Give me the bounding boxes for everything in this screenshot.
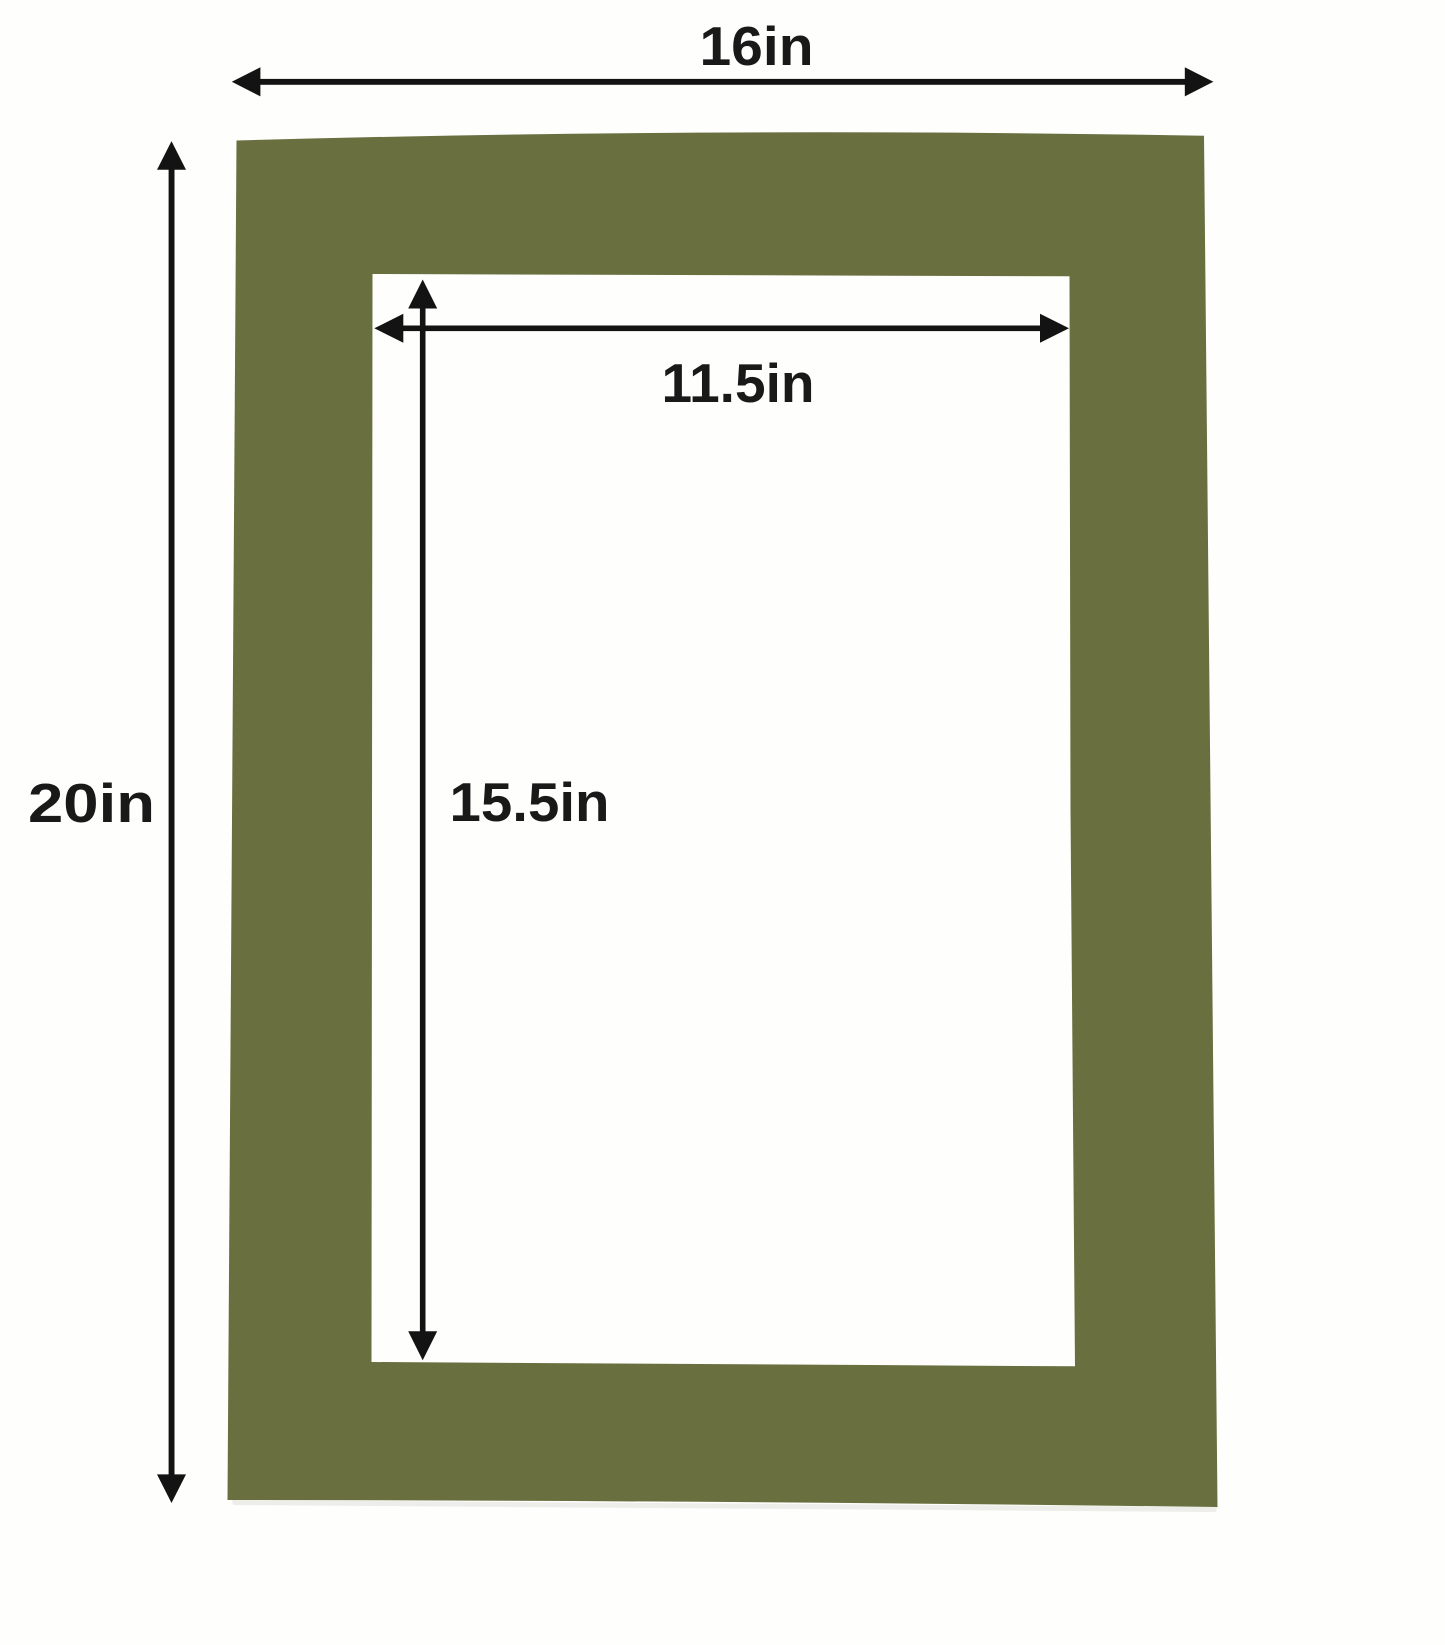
svg-text:11.5in: 11.5in (662, 352, 815, 414)
svg-text:16in: 16in (700, 15, 814, 77)
svg-text:15.5in: 15.5in (450, 771, 610, 833)
svg-text:20in: 20in (28, 772, 155, 834)
